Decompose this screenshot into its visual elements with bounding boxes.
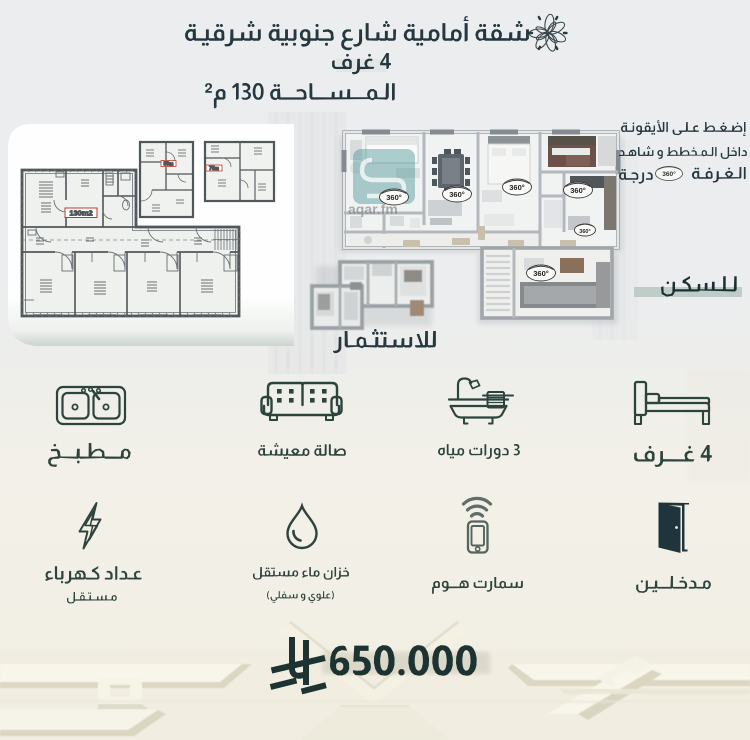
- svg-text:360°: 360°: [533, 269, 549, 278]
- svg-text:360°: 360°: [579, 229, 590, 235]
- svg-text:360°: 360°: [449, 190, 465, 199]
- svg-text:360°: 360°: [570, 186, 586, 195]
- svg-text:360°: 360°: [509, 183, 525, 192]
- svg-text:360°: 360°: [386, 193, 402, 202]
- svg-text:55m: 55m: [163, 162, 174, 168]
- svg-text:360°: 360°: [662, 170, 676, 178]
- svg-text:130m2: 130m2: [69, 208, 92, 217]
- svg-text:75m: 75m: [209, 166, 220, 172]
